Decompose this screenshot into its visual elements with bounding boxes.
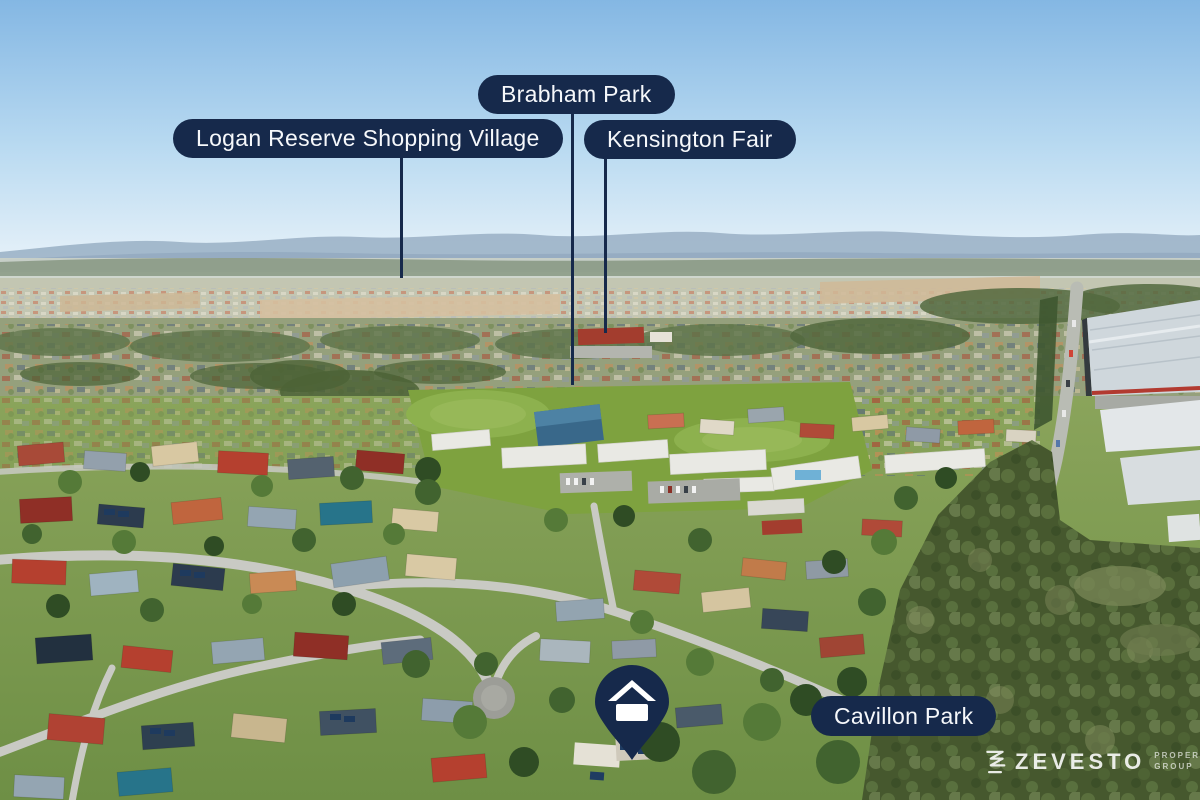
zevesto-zigzag-z-icon (984, 748, 1006, 776)
label-logan-reserve-shopping-village: Logan Reserve Shopping Village (173, 119, 563, 158)
aerial-property-photo: Brabham Park Logan Reserve Shopping Vill… (0, 0, 1200, 800)
label-cavillon-park: Cavillon Park (811, 696, 996, 736)
leader-line-brabham-park (571, 112, 574, 385)
brand-tagline-line1: PROPERTY (1154, 752, 1200, 761)
home-pin-icon (587, 656, 677, 766)
brand-name: ZEVESTO (1015, 751, 1145, 773)
label-kensington-fair: Kensington Fair (584, 120, 796, 159)
brand-tagline-line2: GROUP (1154, 763, 1200, 772)
house-body-glyph (616, 704, 648, 721)
zevesto-watermark: ZEVESTO PROPERTY GROUP (984, 748, 1200, 776)
leader-line-kensington-fair (604, 157, 607, 333)
label-brabham-park: Brabham Park (478, 75, 675, 114)
leader-line-logan-reserve (400, 156, 403, 278)
brand-tagline: PROPERTY GROUP (1154, 752, 1200, 772)
